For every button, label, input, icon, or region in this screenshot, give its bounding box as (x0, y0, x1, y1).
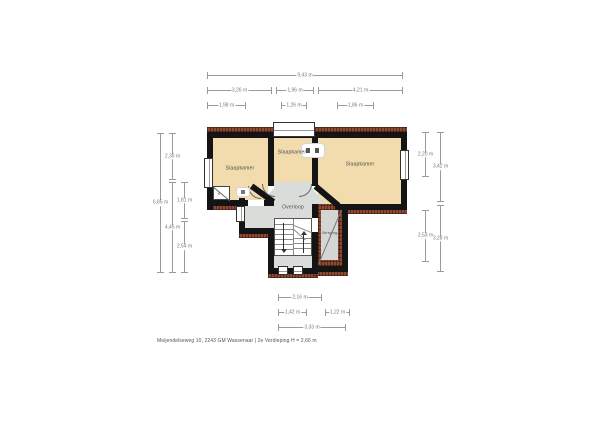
window-right-wall (400, 150, 409, 180)
dim-left-inner-upper: 1,81 m (184, 182, 185, 219)
dim-top-row3-left: 1,98 m (207, 105, 246, 106)
dim-bottom-row2-right: 1,22 m (325, 312, 350, 313)
wall-storage-right (342, 204, 348, 272)
small-wall-badge-icon (237, 188, 249, 196)
wall-storage-left-upper (312, 204, 318, 218)
stair-tread (275, 239, 293, 240)
dim-top-row2-right: 4,21 m (318, 90, 403, 91)
stair-arrow-up-line (303, 235, 304, 253)
closet-box (213, 186, 230, 200)
landing-arm-floor (245, 204, 274, 228)
door-opening-left-room (248, 200, 264, 206)
dim-bottom-row2-left: 1,42 m (278, 312, 307, 313)
dim-top-total: 9,43 m (207, 75, 403, 76)
brick-hatch-right-bottom (347, 210, 407, 214)
stair-tread (275, 244, 293, 245)
dim-right-outer-lower: 3,28 m (440, 205, 441, 272)
room-label-storage: Berging (322, 231, 337, 235)
room-label-landing: Overloop (282, 206, 304, 211)
dim-right-inner-lower: 2,53 m (425, 210, 426, 262)
dim-left-inner-lower: 2,54 m (184, 221, 185, 273)
dim-left-outer: 6,85 m (160, 133, 161, 273)
stair-arrow-down-line (283, 223, 284, 249)
caption: Meijendelseweg 10, 2243 GM Wassenaar | 2… (157, 338, 317, 344)
brick-hatch-arm-bottom (239, 234, 269, 238)
stair-tread (275, 229, 293, 230)
stair-arrow-up-head (301, 231, 307, 235)
dim-right-outer-upper: 3,42 m (440, 132, 441, 202)
window-left-wall (204, 158, 213, 188)
brick-hatch-storage-bottom (313, 272, 348, 276)
closet-label: K (218, 192, 221, 196)
window-stem-bottom-2 (293, 266, 303, 275)
floorplan-page: K Slaapkamer Slaapkamer Slaapkamer Overl… (0, 0, 600, 424)
room-label-left-bedroom: Slaapkamer (226, 167, 255, 172)
dim-top-row2-left: 3,26 m (207, 90, 272, 91)
stair-tread (275, 234, 293, 235)
window-dormer-top (273, 122, 315, 137)
dim-left-mid-lower: 4,45 m (172, 182, 173, 273)
wall-middle-right (312, 132, 318, 186)
window-arm-wall (236, 206, 245, 222)
closet-door-line (213, 187, 230, 201)
wall-badge-glyph (315, 148, 319, 153)
dim-top-row3-right: 1,86 m (337, 105, 374, 106)
room-label-middle-bedroom: Slaapkamer (278, 151, 307, 156)
dim-top-row3-middle: 1,26 m (281, 105, 307, 106)
small-wall-badge-glyph (241, 190, 245, 194)
dim-bottom-row3: 3,33 m (278, 327, 346, 328)
wall-storage-bottom (312, 266, 348, 272)
dim-bottom-row1: 2,16 m (278, 297, 322, 298)
stair-arrow-down-head (281, 249, 287, 253)
wall-left-middle (268, 132, 274, 186)
room-label-right-bedroom: Slaapkamer (346, 163, 375, 168)
dim-right-inner-upper: 2,20 m (425, 132, 426, 177)
staircase (274, 218, 312, 256)
window-stem-bottom-1 (278, 266, 288, 275)
stair-tread (275, 224, 293, 225)
dim-top-row2-middle: 1,96 m (276, 90, 314, 91)
dim-left-mid-upper: 2,30 m (172, 133, 173, 180)
